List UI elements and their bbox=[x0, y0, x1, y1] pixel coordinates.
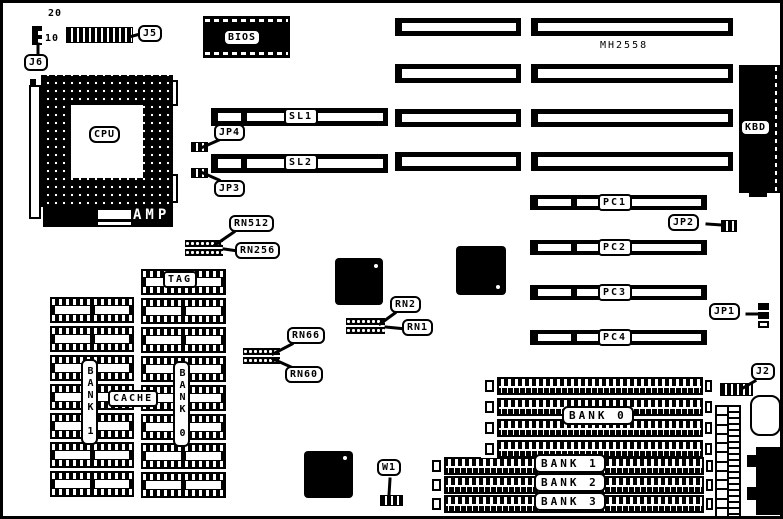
din-connector-tab bbox=[747, 487, 756, 500]
jp2-pins bbox=[721, 220, 737, 232]
battery-outline bbox=[750, 395, 781, 436]
dip-socket-row bbox=[141, 327, 226, 353]
kbd-label: KBD bbox=[740, 119, 771, 136]
jp1-label: JP1 bbox=[709, 303, 740, 320]
tag-label: TAG bbox=[163, 271, 197, 288]
jp4-label: JP4 bbox=[214, 124, 245, 141]
sl2-label: SL2 bbox=[284, 154, 318, 171]
j5-pin20-number: 20 bbox=[48, 8, 62, 19]
pc3-label: PC3 bbox=[598, 284, 632, 301]
jp4-pins bbox=[191, 142, 208, 152]
din-connector-tab bbox=[747, 455, 756, 467]
bank3-label: BANK 3 bbox=[534, 492, 606, 511]
cpu-label: CPU bbox=[89, 126, 120, 143]
qfp-chip bbox=[456, 246, 506, 295]
bank0-label: BANK 0 bbox=[562, 406, 634, 425]
jp1-pins bbox=[758, 303, 769, 328]
dip-socket-row bbox=[141, 298, 226, 324]
dip-socket-row bbox=[141, 472, 226, 498]
isa-slot bbox=[531, 109, 733, 127]
dip-socket-row bbox=[50, 326, 134, 352]
bank1-label: BANK 1 bbox=[534, 454, 606, 473]
cpu-left-connector bbox=[29, 85, 41, 219]
jp2-label: JP2 bbox=[668, 214, 699, 231]
cache-label: CACHE bbox=[108, 390, 158, 407]
rn512-label: RN512 bbox=[229, 215, 274, 232]
bios-label: BIOS bbox=[223, 29, 261, 46]
rn2-label: RN2 bbox=[390, 296, 421, 313]
qfp-chip bbox=[304, 451, 353, 498]
isa-slot bbox=[531, 18, 733, 36]
chipset-marking: MH2558 bbox=[600, 40, 648, 51]
rn1-label: RN1 bbox=[402, 319, 433, 336]
cache-bank1-label: BANK 1 bbox=[81, 359, 98, 445]
j5-label: J5 bbox=[138, 25, 162, 42]
dip-socket-row bbox=[50, 442, 134, 468]
amp-connector: AMP bbox=[43, 205, 173, 227]
j2-pin-header bbox=[720, 383, 753, 396]
cache-bank0-label: BANK 0 bbox=[173, 361, 190, 447]
cpu-right-tab-top bbox=[171, 80, 178, 106]
isa-slot bbox=[531, 64, 733, 83]
cpu-right-tab-bottom bbox=[171, 174, 178, 203]
rn512-rn256-network bbox=[185, 240, 223, 256]
simm-slot bbox=[481, 377, 714, 395]
isa-slot bbox=[395, 18, 521, 36]
amp-label: AMP bbox=[133, 207, 170, 223]
jp3-pins bbox=[191, 168, 208, 178]
bank2-label: BANK 2 bbox=[534, 473, 606, 492]
rn256-label: RN256 bbox=[235, 242, 280, 259]
power-connector bbox=[715, 405, 741, 518]
motherboard-diagram: 20 10 J5 J6 CPU AMP BIOS MH2558 SL1 SL2 bbox=[0, 0, 783, 519]
j5-pin-header bbox=[66, 27, 133, 43]
j5-pin10-number: 10 bbox=[45, 33, 59, 44]
dip-socket-row bbox=[50, 297, 134, 323]
pc4-label: PC4 bbox=[598, 329, 632, 346]
rn2-rn1-network bbox=[346, 318, 385, 334]
qfp-chip bbox=[335, 258, 383, 305]
isa-slot bbox=[395, 64, 521, 83]
pc2-label: PC2 bbox=[598, 239, 632, 256]
w1-pins bbox=[380, 495, 403, 506]
dip-socket-row bbox=[50, 471, 134, 497]
pc1-label: PC1 bbox=[598, 194, 632, 211]
isa-slot bbox=[395, 109, 521, 127]
din-connector bbox=[756, 447, 783, 515]
j2-label: J2 bbox=[751, 363, 775, 380]
sl1-label: SL1 bbox=[284, 108, 318, 125]
isa-slot bbox=[395, 152, 521, 171]
j6-connector bbox=[32, 26, 42, 45]
kbd-nub bbox=[749, 191, 767, 197]
isa-slot bbox=[531, 152, 733, 171]
rn66-rn60-network bbox=[243, 348, 280, 364]
rn60-label: RN60 bbox=[285, 366, 323, 383]
jp3-label: JP3 bbox=[214, 180, 245, 197]
w1-label: W1 bbox=[377, 459, 401, 476]
rn66-label: RN66 bbox=[287, 327, 325, 344]
j6-label: J6 bbox=[24, 54, 48, 71]
